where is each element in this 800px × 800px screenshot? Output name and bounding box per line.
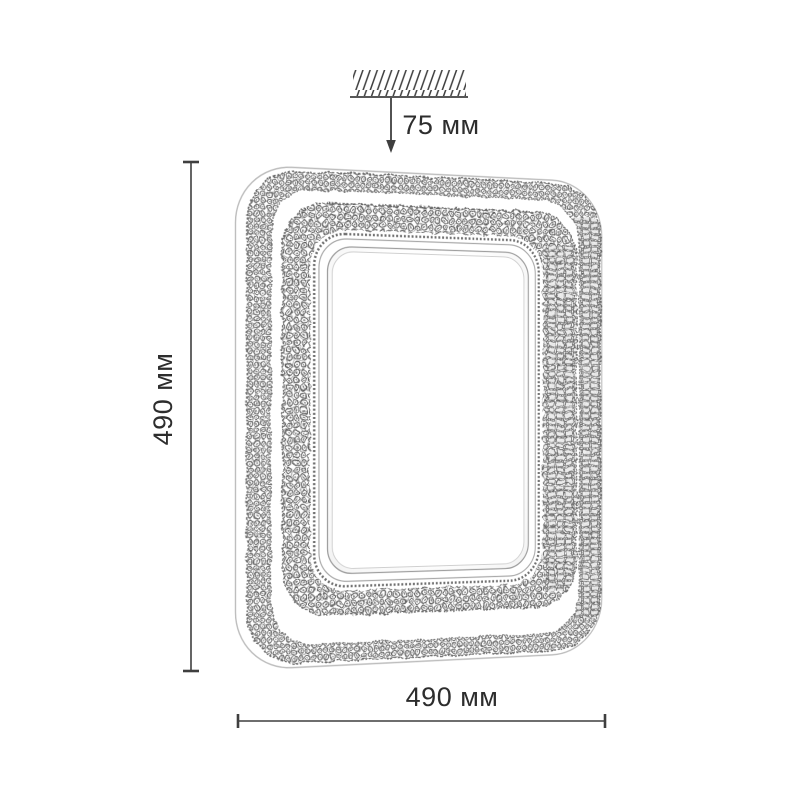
mount-distance-annotation: 75 мм (350, 70, 480, 153)
width-label: 490 мм (406, 682, 499, 712)
ceiling-hatch-icon (353, 70, 466, 96)
down-arrow-icon (386, 98, 396, 153)
height-label: 490 мм (148, 353, 178, 446)
height-annotation: 490 мм (148, 162, 199, 671)
diagram-canvas: 75 мм 490 мм 490 мм (0, 0, 800, 800)
lamp-panel-inner-line (332, 251, 524, 569)
mount-distance-label: 75 мм (402, 110, 479, 140)
lamp-drawing (234, 163, 603, 672)
width-annotation: 490 мм (238, 682, 605, 728)
lamp-illustration (234, 163, 603, 672)
